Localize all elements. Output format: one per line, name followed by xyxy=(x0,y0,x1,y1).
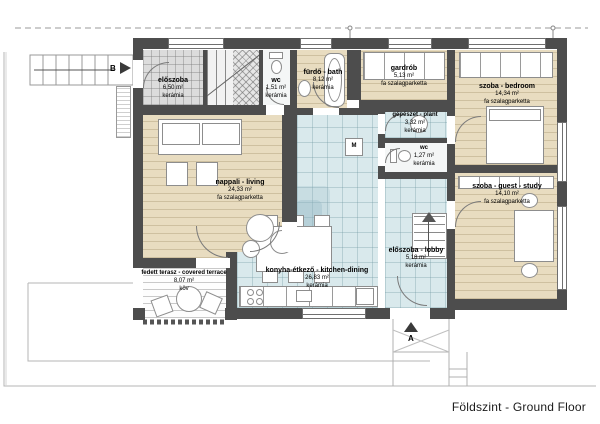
side-note-box xyxy=(116,86,131,138)
section-marker-b-label: B xyxy=(110,64,116,73)
wall-wc-lobby xyxy=(378,172,447,179)
wall-guest-bottom xyxy=(447,299,567,310)
section-marker-a-arrow xyxy=(404,322,418,332)
floor-plan: M B A előszoba6,50 m²kerámia wc1,51 m²ke… xyxy=(0,0,600,424)
door-bedroom-gap xyxy=(447,116,455,144)
toilet-bowl-top xyxy=(271,60,282,74)
window-bedroom-right xyxy=(557,122,567,182)
door-bath-gap xyxy=(313,108,339,115)
wall-plant-wc xyxy=(385,138,447,143)
label-gardrob: gardrób5,13 m²fa szalagparketta xyxy=(370,64,438,89)
terrace-post-right xyxy=(225,308,237,320)
door-guest-gap xyxy=(447,201,455,229)
door-wc-top-gap xyxy=(266,105,284,115)
wall-lobby-bottom-right xyxy=(430,308,455,319)
drawing-title: Földszint - Ground Floor xyxy=(452,400,586,414)
window-bath xyxy=(300,38,332,49)
label-terrace: fedett terasz - covered terrace8,07 m²kö… xyxy=(136,270,232,293)
window-gardrob xyxy=(388,38,432,49)
door-wc-mid-gap xyxy=(378,148,385,166)
label-wc-top: wc1,51 m²kerámia xyxy=(256,76,296,101)
label-eloszoba: előszoba6,50 m²kerámia xyxy=(141,76,205,101)
sofa-cushion xyxy=(162,123,200,145)
window-eloszoba xyxy=(168,38,224,49)
section-marker-b-arrow xyxy=(120,62,131,74)
label-guest: szoba - guest - study14,10 m²fa szalagpa… xyxy=(460,182,554,207)
lobby-stair-arrow-head xyxy=(422,212,436,222)
door-living-kitchen-gap xyxy=(282,222,297,252)
window-bedroom-top xyxy=(468,38,546,49)
window-kitchen-bottom xyxy=(302,308,366,319)
dining-chair xyxy=(314,215,330,227)
window-guest-right xyxy=(557,206,567,290)
section-marker-a-label: A xyxy=(408,334,414,343)
terrace-post-left xyxy=(133,308,145,320)
label-living: nappali - living24,33 m²fa szalagparkett… xyxy=(192,178,288,203)
door-terrace-gap xyxy=(196,258,230,268)
washing-machine-label: M xyxy=(345,143,363,149)
sofa-cushion xyxy=(202,123,240,145)
armchair xyxy=(166,162,188,186)
label-bath: fürdő - bath8,12 m²kerámia xyxy=(296,68,350,93)
label-kitchen: konyha-étkező - kitchen-dining26,83 m²ke… xyxy=(248,266,386,291)
kitchen-sink xyxy=(296,290,312,302)
wall-bedroom-guest xyxy=(455,165,567,173)
wall-gardrob-plant xyxy=(359,100,455,112)
label-wc-mid: wc1,27 m²kerámia xyxy=(402,145,446,168)
stove-burner xyxy=(256,298,263,305)
guest-chair-bottom xyxy=(521,263,538,278)
label-plant: gépészet - plant3,32 m²kerámia xyxy=(383,112,447,135)
wall-gardrob-bedroom xyxy=(447,50,455,100)
bed-pillows xyxy=(489,109,541,121)
label-lobby: előszoba - lobby5,18 m²kerámia xyxy=(382,246,450,271)
guest-desk xyxy=(514,210,554,262)
bedroom-wardrobe xyxy=(459,52,553,78)
door-entrance-gap xyxy=(392,308,430,319)
toilet-tank-top xyxy=(269,52,283,59)
stove-burner xyxy=(247,298,254,305)
label-bedroom: szoba - bedroom14,34 m²fa szalagparketta xyxy=(466,82,548,107)
